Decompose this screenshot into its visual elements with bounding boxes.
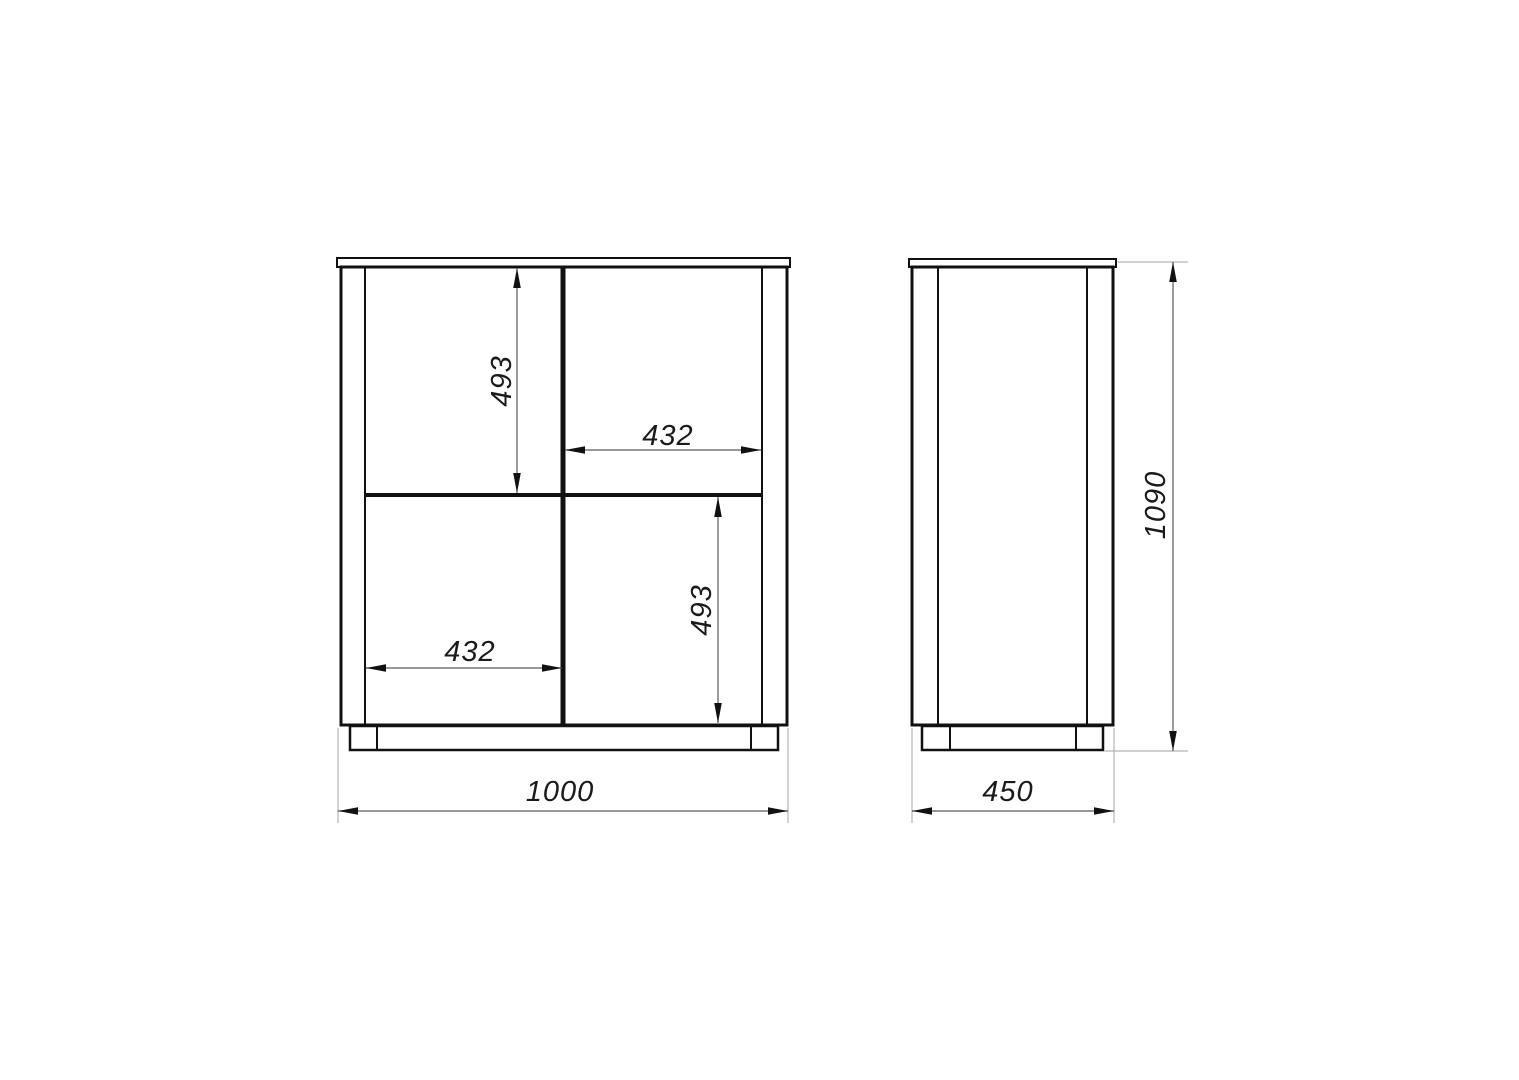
dim-label: 1090 bbox=[1140, 471, 1172, 540]
arrow-down-icon bbox=[1169, 731, 1177, 751]
technical-drawing: 493 432 432 493 bbox=[0, 0, 1519, 1080]
dim-label: 493 bbox=[486, 355, 518, 406]
dim-label: 1000 bbox=[526, 776, 595, 808]
front-plinth bbox=[350, 726, 778, 750]
arrow-left-icon bbox=[338, 807, 358, 815]
dim-label: 450 bbox=[982, 776, 1033, 808]
arrow-up-icon bbox=[1169, 262, 1177, 282]
front-view bbox=[337, 258, 790, 750]
arrow-left-icon bbox=[912, 807, 932, 815]
side-body bbox=[912, 267, 1113, 725]
drawing-canvas: 493 432 432 493 bbox=[0, 0, 1519, 1080]
arrow-right-icon bbox=[768, 807, 788, 815]
dim-label: 493 bbox=[686, 584, 718, 635]
dim-label: 432 bbox=[444, 636, 495, 668]
side-view bbox=[909, 259, 1116, 750]
dim-label: 432 bbox=[642, 420, 693, 452]
arrow-right-icon bbox=[1094, 807, 1114, 815]
dim-side-overall-height: 1090 bbox=[1104, 262, 1188, 751]
